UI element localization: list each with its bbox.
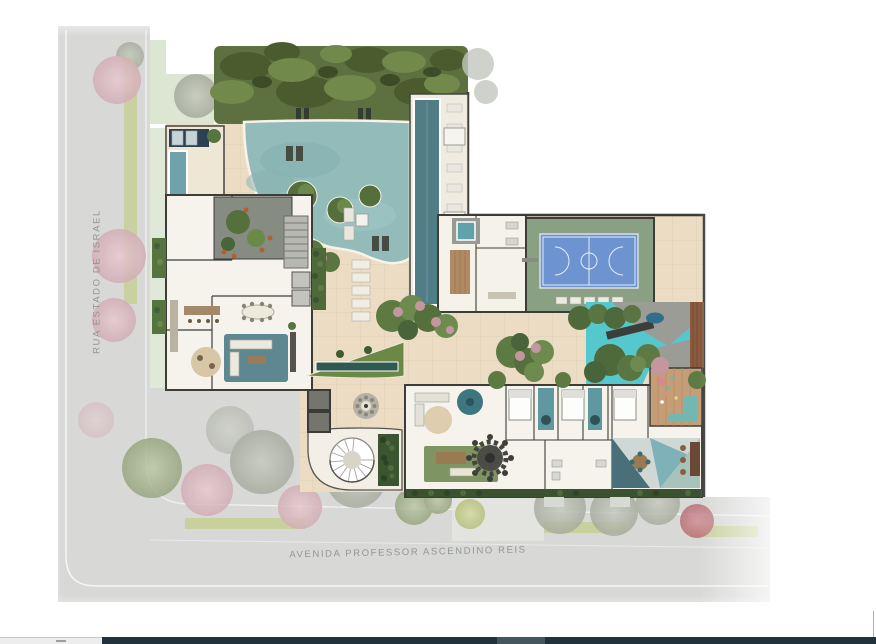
window-edge-bar[interactable] <box>0 637 876 644</box>
indoor-lounge-wing <box>166 195 312 390</box>
mosaic-medallion <box>353 393 379 419</box>
window-edge-light-segment[interactable] <box>0 637 102 644</box>
changing-rooms <box>438 215 526 312</box>
water-sculpture <box>646 313 664 324</box>
terrace-hedge <box>378 434 399 486</box>
spa-plunge <box>457 222 475 240</box>
site-plan-screenshot: RUA ESTADO DE ISRAEL AVENIDA PROFESSOR A… <box>0 0 876 644</box>
street-label-rua-estado-de-israel: RUA ESTADO DE ISRAEL <box>92 182 103 382</box>
sun-loungers <box>352 260 370 321</box>
hedge-strip <box>406 489 702 497</box>
window-edge-accent-segment[interactable] <box>497 637 545 644</box>
terrace-elevator <box>308 412 330 432</box>
deck-hedge <box>312 248 326 310</box>
winter-garden-patio <box>214 197 292 259</box>
window-grab-handle <box>56 640 66 642</box>
spiral-staircase <box>330 438 374 482</box>
court-gate <box>522 258 538 262</box>
sports-court <box>522 218 654 312</box>
window-corner-line <box>873 611 874 637</box>
coworking-lounge <box>612 438 700 488</box>
reflecting-channel <box>316 362 398 371</box>
terrace-elevator <box>308 390 330 410</box>
window-edge-dark-segment[interactable] <box>102 637 876 644</box>
